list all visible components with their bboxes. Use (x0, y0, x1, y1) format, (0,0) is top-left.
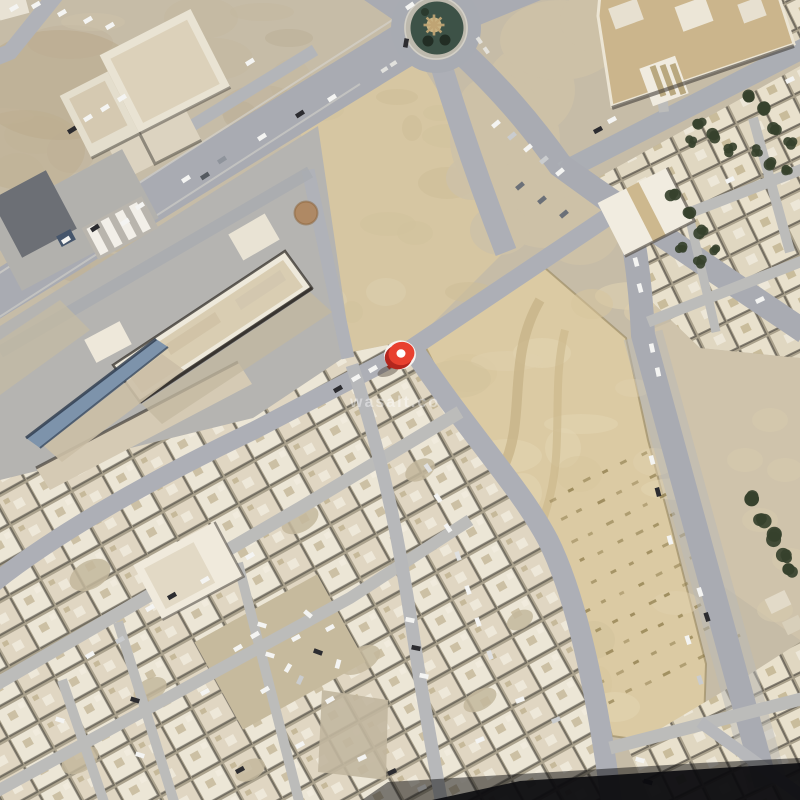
svg-text:wasalt.co: wasalt.co (349, 394, 440, 411)
